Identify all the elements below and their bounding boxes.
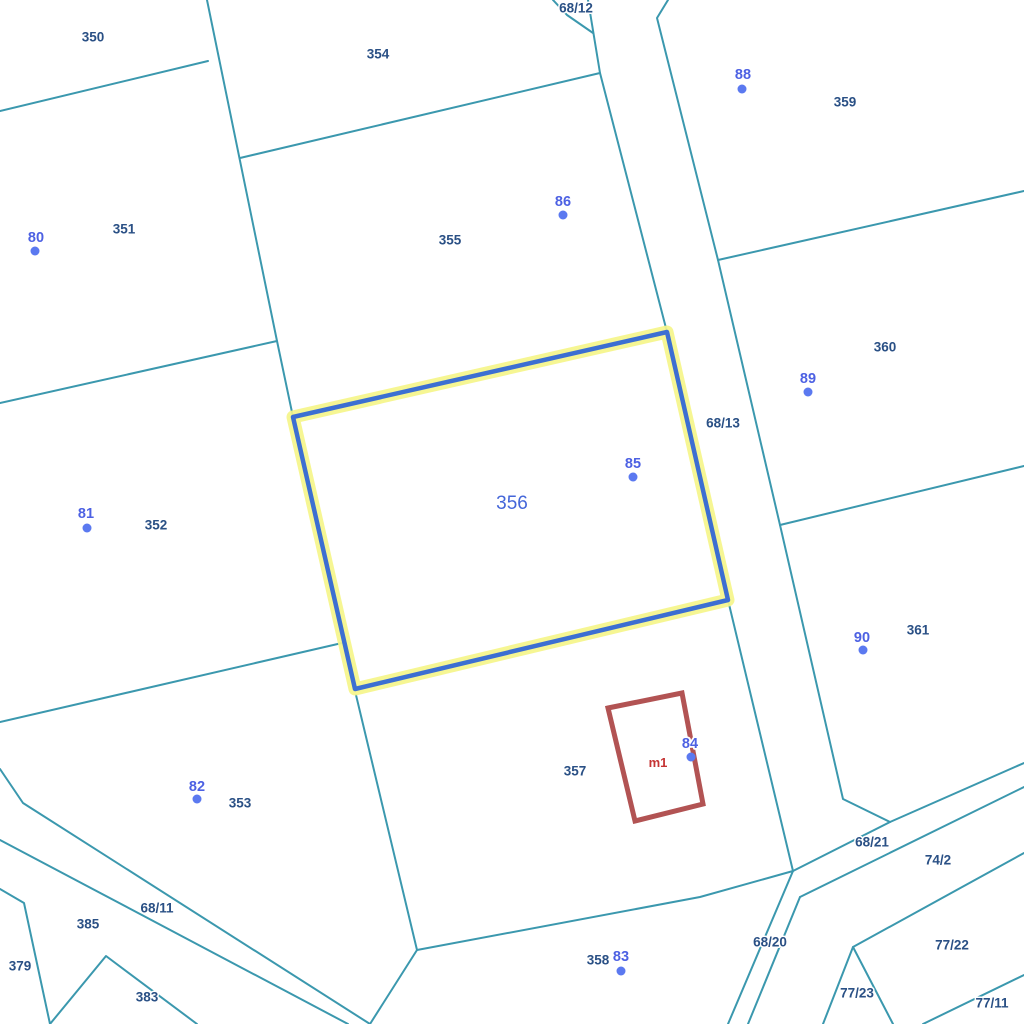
map-viewport[interactable]: 3503513523533543553573583593603613793833… <box>0 0 1024 1024</box>
survey-point-label-89: 89 <box>800 371 816 387</box>
boundary-77-11-north <box>923 975 1024 1024</box>
boundary-379-east <box>0 889 50 1024</box>
parcel-label-77-22: 77/22 <box>935 938 969 953</box>
boundary-350-351 <box>0 61 208 111</box>
parcel-label-77-11: 77/11 <box>975 996 1009 1011</box>
parcel-label-68-13: 68/13 <box>706 416 740 431</box>
boundary-360-361 <box>780 466 1024 525</box>
parcel-label-357: 357 <box>564 764 587 779</box>
parcel-label-361: 361 <box>907 623 930 638</box>
survey-point-label-81: 81 <box>78 506 94 522</box>
parcel-label-360: 360 <box>874 340 897 355</box>
survey-point-dot-90[interactable] <box>859 646 868 655</box>
parcel-label-74-2: 74/2 <box>925 853 951 868</box>
parcel-label-68-21: 68/21 <box>855 835 889 850</box>
parcel-label-383: 383 <box>136 990 159 1005</box>
survey-point-label-88: 88 <box>735 67 751 83</box>
cadastral-map-canvas[interactable]: 3503513523533543553573583593603613793833… <box>0 0 1024 1024</box>
parcel-label-379: 379 <box>9 959 32 974</box>
boundary-353-357 <box>356 695 417 1024</box>
road-68-11-north-edge <box>0 769 370 1024</box>
survey-point-label-83: 83 <box>613 949 629 965</box>
road-68-21-north-edge <box>793 763 1024 871</box>
survey-point-dot-89[interactable] <box>804 388 813 397</box>
road-east-edge <box>657 0 890 822</box>
survey-point-dot-85[interactable] <box>629 473 638 482</box>
parcel-label-77-23: 77/23 <box>840 986 874 1001</box>
survey-point-dot-81[interactable] <box>83 524 92 533</box>
survey-point-dot-88[interactable] <box>738 85 747 94</box>
parcel-label-68-11: 68/11 <box>140 901 174 916</box>
parcel-label-350: 350 <box>82 30 105 45</box>
parcel-label-352: 352 <box>145 518 168 533</box>
survey-point-label-85: 85 <box>625 456 641 472</box>
survey-point-dot-82[interactable] <box>193 795 202 804</box>
selected-parcel-label: 356 <box>496 493 528 514</box>
parcel-label-354: 354 <box>367 47 390 62</box>
survey-point-dot-80[interactable] <box>31 247 40 256</box>
survey-point-label-80: 80 <box>28 230 44 246</box>
survey-point-label-82: 82 <box>189 779 205 795</box>
parcel-label-353: 353 <box>229 796 252 811</box>
survey-point-label-84: 84 <box>682 736 698 752</box>
boundary-359-360 <box>718 191 1024 260</box>
building-label: m1 <box>649 755 668 770</box>
boundary-357-358 <box>417 871 793 950</box>
boundary-351-352 <box>0 341 277 403</box>
boundary-354-355 <box>240 73 600 158</box>
survey-point-dot-86[interactable] <box>559 211 568 220</box>
survey-point-label-90: 90 <box>854 630 870 646</box>
parcel-label-358: 358 <box>587 953 610 968</box>
parcel-label-355: 355 <box>439 233 462 248</box>
parcel-label-68-12: 68/12 <box>559 1 593 16</box>
boundary-383-triangle <box>50 956 197 1024</box>
road-68-21-south-edge <box>800 787 1024 897</box>
survey-point-label-86: 86 <box>555 194 571 210</box>
boundary-352-353 <box>0 643 342 722</box>
parcel-label-385: 385 <box>77 917 100 932</box>
parcel-label-359: 359 <box>834 95 857 110</box>
parcel-label-351: 351 <box>113 222 136 237</box>
survey-point-dot-84[interactable] <box>687 753 696 762</box>
road-68-11-south-edge <box>0 840 348 1024</box>
survey-point-dot-83[interactable] <box>617 967 626 976</box>
parcel-label-68-20: 68/20 <box>753 935 787 950</box>
